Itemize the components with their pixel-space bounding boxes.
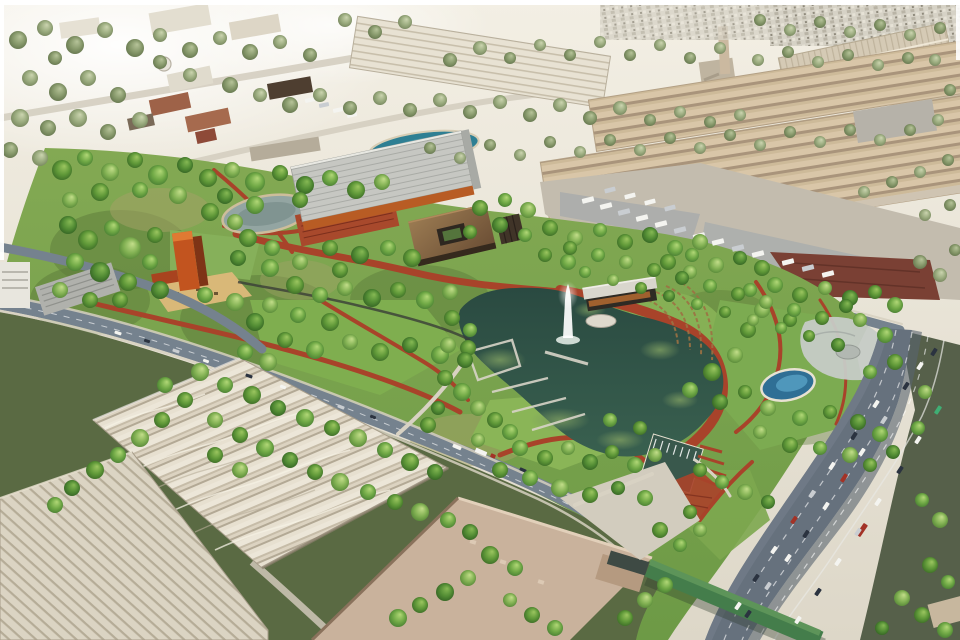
tree: [831, 338, 845, 352]
tree: [321, 313, 339, 331]
tree: [331, 473, 349, 491]
tree: [759, 295, 773, 309]
tree: [148, 165, 168, 185]
tree: [747, 314, 759, 326]
tree: [91, 183, 109, 201]
tree: [151, 281, 169, 299]
tree: [512, 440, 528, 456]
tree: [703, 279, 717, 293]
tree: [872, 59, 884, 71]
tree: [368, 25, 382, 39]
tree: [411, 503, 429, 521]
tree: [839, 299, 853, 313]
tree: [784, 24, 796, 36]
tree: [232, 462, 248, 478]
tree: [787, 303, 801, 317]
tree: [868, 285, 882, 299]
tree: [403, 103, 417, 117]
tree: [583, 111, 597, 125]
tree: [66, 253, 84, 271]
tree: [518, 228, 532, 242]
tree: [110, 87, 126, 103]
tree: [101, 163, 119, 181]
tree: [270, 400, 286, 416]
tree: [232, 427, 248, 443]
tree: [262, 297, 278, 313]
tree: [183, 68, 197, 82]
tree: [877, 327, 893, 343]
tree: [784, 126, 796, 138]
tree: [503, 593, 517, 607]
tree: [239, 229, 257, 247]
tree: [498, 193, 512, 207]
tree: [390, 282, 406, 298]
tree: [460, 570, 476, 586]
tree: [424, 142, 436, 154]
tree: [471, 433, 485, 447]
tree: [850, 414, 866, 430]
tree: [401, 453, 419, 471]
tree: [222, 77, 238, 93]
tree: [792, 287, 808, 303]
tree: [842, 49, 854, 61]
tree: [594, 36, 606, 48]
tree: [603, 413, 617, 427]
tree: [754, 14, 766, 26]
tree: [484, 139, 496, 151]
tree: [243, 386, 261, 404]
tree: [844, 124, 856, 136]
tree: [863, 458, 877, 472]
tree: [792, 410, 808, 426]
tree: [230, 250, 246, 266]
tree: [574, 146, 586, 158]
tree: [547, 620, 563, 636]
tree: [844, 26, 856, 38]
tree: [703, 363, 721, 381]
tree: [282, 452, 298, 468]
tree: [126, 39, 144, 57]
tree: [544, 136, 556, 148]
tree: [313, 88, 327, 102]
tree: [349, 429, 367, 447]
tree: [675, 271, 689, 285]
tree: [199, 169, 217, 187]
tree: [132, 112, 148, 128]
tree: [894, 590, 910, 606]
tree: [201, 203, 219, 221]
tree: [282, 97, 298, 113]
tree: [131, 429, 149, 447]
tree: [542, 220, 558, 236]
tree: [761, 495, 775, 509]
tree: [502, 424, 518, 440]
tree: [97, 22, 113, 38]
tree: [553, 98, 567, 112]
tree: [660, 254, 676, 270]
tree: [226, 293, 244, 311]
tree: [743, 283, 757, 297]
tree: [863, 365, 877, 379]
tree: [49, 83, 67, 101]
tree: [48, 51, 62, 65]
tree: [644, 114, 656, 126]
tree: [691, 298, 703, 310]
tree: [462, 524, 478, 540]
tree: [402, 337, 418, 353]
tree: [754, 260, 770, 276]
tree: [922, 557, 938, 573]
tree: [667, 240, 683, 256]
tree: [933, 268, 947, 282]
tree: [874, 134, 886, 146]
tree: [932, 512, 948, 528]
tree: [619, 255, 633, 269]
tree: [389, 609, 407, 627]
tree: [911, 421, 925, 435]
tree: [322, 170, 338, 186]
tree: [818, 281, 832, 295]
tree: [246, 196, 264, 214]
tree: [652, 522, 668, 538]
tree: [110, 447, 126, 463]
tree: [272, 165, 288, 181]
tree: [663, 290, 675, 302]
tree: [69, 109, 87, 127]
tree: [493, 95, 507, 109]
tree: [731, 287, 745, 301]
tree: [207, 447, 223, 463]
tree: [944, 199, 956, 211]
tree: [62, 192, 78, 208]
tree: [633, 421, 647, 435]
tree: [296, 176, 314, 194]
tree: [169, 186, 187, 204]
tree: [454, 152, 466, 164]
tree: [604, 134, 616, 146]
tree: [82, 292, 98, 308]
tree: [692, 234, 708, 250]
tree: [647, 263, 661, 277]
tree: [90, 262, 110, 282]
tree: [444, 310, 460, 326]
tree: [104, 220, 120, 236]
tree: [684, 52, 696, 64]
tree: [440, 337, 456, 353]
tree: [403, 249, 421, 267]
tree: [64, 480, 80, 496]
tree: [431, 401, 445, 415]
tree: [782, 46, 794, 58]
tree: [733, 251, 747, 265]
tree: [617, 610, 633, 626]
tree: [537, 450, 553, 466]
tree: [242, 44, 258, 60]
tree: [52, 282, 68, 298]
tree: [593, 223, 607, 237]
tree: [78, 230, 98, 250]
tree: [564, 49, 576, 61]
tree: [874, 19, 886, 31]
tree: [22, 70, 38, 86]
tree: [634, 144, 646, 156]
tree: [504, 52, 516, 64]
tree: [719, 306, 731, 318]
tree: [551, 479, 569, 497]
tree: [611, 481, 625, 495]
fountain-mist: [558, 281, 578, 309]
tree: [153, 28, 167, 42]
tree: [119, 237, 141, 259]
tree: [296, 409, 314, 427]
tree: [915, 493, 929, 507]
tree: [347, 181, 365, 199]
tree: [253, 88, 267, 102]
tree: [142, 254, 158, 270]
tree: [941, 575, 955, 589]
tree: [264, 240, 280, 256]
tree: [217, 188, 233, 204]
tree: [470, 400, 486, 416]
tree: [463, 225, 477, 239]
tree: [237, 344, 253, 360]
tree: [727, 347, 743, 363]
tree: [563, 241, 577, 255]
tree: [492, 217, 508, 233]
tree: [815, 311, 829, 325]
tree: [442, 284, 458, 300]
tree: [157, 377, 173, 393]
tree: [398, 15, 412, 29]
tree: [560, 254, 576, 270]
tree: [273, 35, 287, 49]
tree: [664, 132, 676, 144]
tree: [642, 227, 658, 243]
tree: [694, 142, 706, 154]
tree: [737, 484, 753, 500]
tree: [914, 166, 926, 178]
tree: [522, 470, 538, 486]
tree: [380, 240, 396, 256]
tree: [153, 55, 167, 69]
tree: [904, 124, 916, 136]
tree: [775, 322, 787, 334]
tree: [292, 192, 308, 208]
tree: [648, 448, 662, 462]
tree: [693, 463, 707, 477]
tree: [887, 297, 903, 313]
tree: [520, 202, 536, 218]
tree: [523, 108, 537, 122]
tree: [617, 234, 633, 250]
tree: [657, 577, 673, 593]
tree: [481, 546, 499, 564]
tree: [32, 150, 48, 166]
tree: [119, 273, 137, 291]
rendering-canvas: [0, 0, 960, 640]
tree: [635, 282, 647, 294]
tree: [337, 280, 353, 296]
tree: [457, 352, 473, 368]
tree: [363, 289, 381, 307]
tree: [872, 426, 888, 442]
tree: [767, 277, 783, 293]
tree: [886, 176, 898, 188]
tree: [463, 105, 477, 119]
tree: [902, 52, 914, 64]
tree: [492, 462, 508, 478]
tree: [753, 425, 767, 439]
tree: [624, 49, 636, 61]
tree: [77, 150, 93, 166]
tree: [332, 262, 348, 278]
tree: [437, 370, 453, 386]
tree: [738, 385, 752, 399]
tree: [607, 274, 619, 286]
tree: [685, 248, 699, 262]
tree: [613, 101, 627, 115]
tree: [338, 13, 352, 27]
tree: [427, 464, 443, 480]
tree: [371, 343, 389, 361]
tree: [37, 20, 53, 36]
tree: [177, 392, 193, 408]
tree: [887, 354, 903, 370]
tree: [292, 254, 308, 270]
tree: [561, 441, 575, 455]
tree: [514, 149, 526, 161]
tree: [433, 93, 447, 107]
tree: [814, 16, 826, 28]
tree: [579, 266, 591, 278]
tree: [440, 512, 456, 528]
tree: [538, 248, 552, 262]
tree: [942, 154, 954, 166]
tree: [322, 240, 338, 256]
tree: [534, 39, 546, 51]
tree: [654, 39, 666, 51]
tree: [147, 227, 163, 243]
tree: [191, 363, 209, 381]
tree: [2, 142, 18, 158]
tree: [914, 607, 930, 623]
tree: [373, 91, 387, 105]
tree: [929, 54, 941, 66]
tree: [904, 29, 916, 41]
tree: [693, 523, 707, 537]
tree: [177, 157, 193, 173]
tree: [127, 152, 143, 168]
tree: [524, 607, 540, 623]
tree: [605, 445, 619, 459]
tree: [197, 287, 213, 303]
dry-grass-patch: [110, 188, 210, 232]
tree: [913, 255, 927, 269]
tree: [715, 475, 729, 489]
tree: [9, 31, 27, 49]
tree: [842, 447, 858, 463]
tree: [886, 445, 900, 459]
tree: [453, 383, 471, 401]
aerial-park-rendering: [0, 0, 960, 640]
tree: [754, 139, 766, 151]
tree: [712, 394, 728, 410]
tree: [582, 487, 598, 503]
tree: [360, 484, 376, 500]
tree: [343, 101, 357, 115]
tree: [436, 583, 454, 601]
tree: [374, 174, 390, 190]
tree: [52, 160, 72, 180]
tree: [261, 259, 279, 277]
tree: [591, 248, 605, 262]
tree: [487, 412, 503, 428]
tree: [47, 497, 63, 513]
tree: [752, 54, 764, 66]
tree: [324, 420, 340, 436]
tree: [303, 48, 317, 62]
tree: [66, 36, 84, 54]
tree: [823, 405, 837, 419]
tree: [132, 182, 148, 198]
algae-patch: [640, 340, 680, 360]
tree: [351, 246, 369, 264]
tree: [306, 341, 324, 359]
tree: [918, 385, 932, 399]
tree: [377, 442, 393, 458]
tree: [245, 172, 265, 192]
tree: [853, 313, 867, 327]
tree: [342, 334, 358, 350]
tree: [937, 622, 953, 638]
tree: [673, 538, 687, 552]
tree: [207, 412, 223, 428]
tree: [224, 162, 240, 178]
tree: [724, 129, 736, 141]
tree: [277, 332, 293, 348]
housing-fabric: [600, 0, 770, 40]
tree: [11, 109, 29, 127]
tree: [463, 323, 477, 337]
tree: [256, 439, 274, 457]
tree: [59, 216, 77, 234]
tree: [290, 307, 306, 323]
tree: [674, 106, 686, 118]
tree: [182, 42, 198, 58]
tree: [100, 124, 116, 140]
tree: [387, 494, 403, 510]
tree: [86, 461, 104, 479]
tree: [814, 136, 826, 148]
tree: [683, 505, 697, 519]
tree: [312, 287, 328, 303]
tree: [813, 441, 827, 455]
tree: [420, 417, 436, 433]
tree: [812, 56, 824, 68]
tree: [259, 353, 277, 371]
tree: [627, 457, 643, 473]
tree: [582, 454, 598, 470]
tree: [734, 109, 746, 121]
tree: [217, 377, 233, 393]
tree: [858, 186, 870, 198]
tree: [919, 209, 931, 221]
tree: [246, 313, 264, 331]
tree: [507, 560, 523, 576]
tree: [473, 41, 487, 55]
tree: [227, 214, 243, 230]
tree: [932, 114, 944, 126]
